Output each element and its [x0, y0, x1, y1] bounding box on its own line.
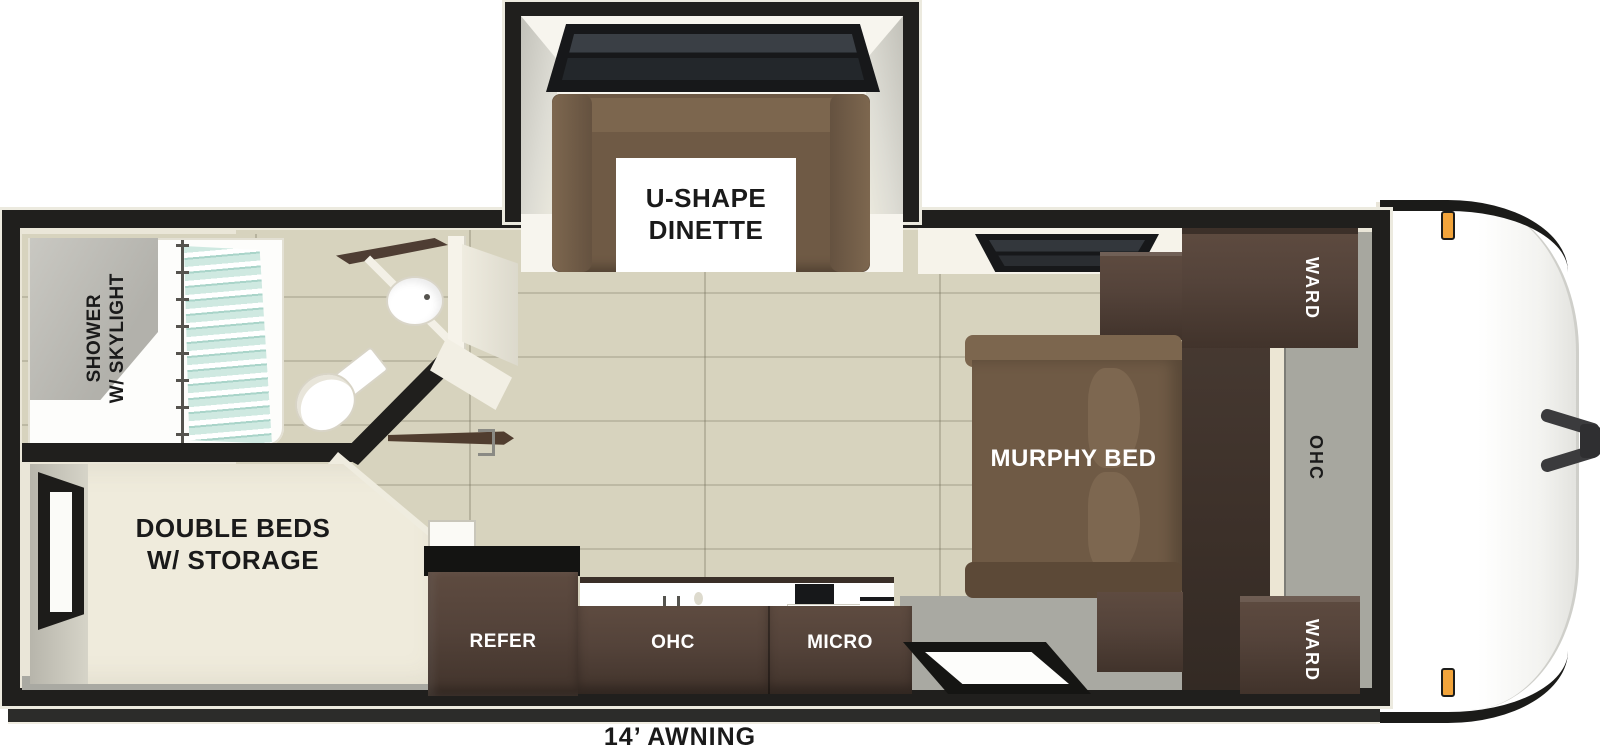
- hitch-coupler: [1580, 424, 1600, 458]
- marker-light-top-icon: [1441, 211, 1455, 240]
- murphy-bed-cushion-bottom: [1088, 472, 1140, 572]
- ohc-wall-label: OHC: [1300, 423, 1326, 493]
- front-cap-trim-bottom: [1380, 634, 1568, 723]
- bathroom-label-line2: W/ SKYLIGHT: [106, 273, 129, 403]
- murphy-bed-label: MURPHY BED: [965, 444, 1182, 473]
- overhead-cabinet-top-small: [1100, 252, 1182, 340]
- micro-label: MICRO: [768, 631, 912, 654]
- rv-floorplan: 14’ AWNING U-SHAPE DINETTE SHOWER W/: [0, 0, 1600, 749]
- bathroom-sink: [386, 276, 444, 326]
- ward-top-label: WARD: [1296, 236, 1322, 340]
- table-arm-bracket: [478, 429, 495, 456]
- bedroom-label-box: DOUBLE BEDS W/ STORAGE: [88, 500, 378, 590]
- bathroom-label-box: SHOWER W/ SKYLIGHT: [28, 240, 184, 436]
- cooktop: [795, 584, 834, 606]
- awning-label: 14’ AWNING: [480, 722, 880, 749]
- sink-drain-icon: [424, 294, 430, 300]
- bathroom-door-wall: [448, 236, 464, 356]
- ward-cabinet-top: [1182, 228, 1358, 348]
- bathroom-label-line1: SHOWER: [83, 273, 106, 403]
- ohc-kitchen-label: OHC: [578, 631, 768, 654]
- shower-curtain: [184, 246, 272, 444]
- bedroom-window-glass: [50, 492, 72, 612]
- dinette-window-glass: [562, 34, 864, 80]
- bedroom-label-line2: W/ STORAGE: [136, 545, 331, 577]
- bathroom-bottom-wall: [22, 443, 352, 462]
- dinette-label-line2: DINETTE: [646, 215, 767, 247]
- ward-bottom-label: WARD: [1296, 608, 1322, 692]
- dinette-bench-armrest-left: [552, 94, 592, 272]
- overhead-cabinet-bottom-small: [1097, 592, 1183, 672]
- marker-light-bottom-icon: [1441, 668, 1455, 697]
- front-cap-trim-top: [1380, 200, 1568, 289]
- kitchen-faucet-icon: [663, 596, 666, 606]
- murphy-bed-board: [1268, 315, 1284, 613]
- dinette-bench-back: [558, 98, 864, 132]
- refer-label: REFER: [428, 630, 578, 653]
- kitchen-sink-icon: [694, 592, 703, 605]
- bedroom-label-line1: DOUBLE BEDS: [136, 513, 331, 545]
- dinette-label-box: U-SHAPE DINETTE: [616, 158, 796, 272]
- dinette-bench-armrest-right: [830, 94, 870, 272]
- dinette-label-line1: U-SHAPE: [646, 183, 767, 215]
